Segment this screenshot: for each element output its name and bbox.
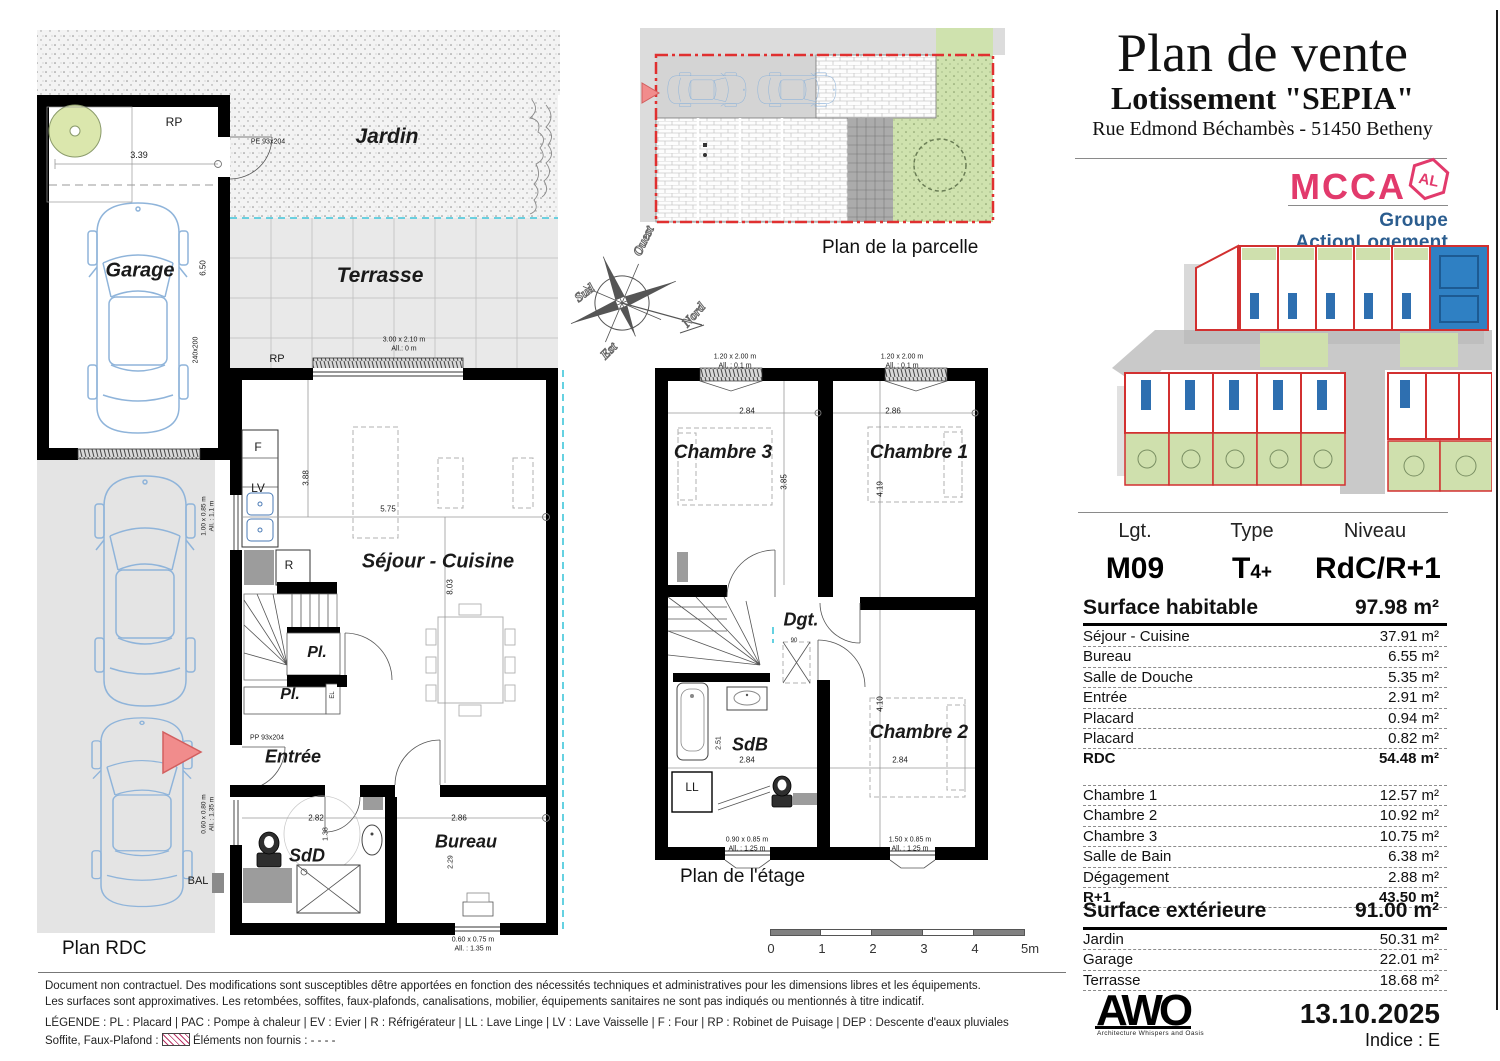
plan-rdc-caption: Plan RDC (62, 938, 146, 960)
r1-surface-rows: Chambre 112.57 m²Chambre 210.92 m²Chambr… (1083, 785, 1447, 908)
surface-row-label: Garage (1083, 950, 1133, 969)
lot-number: M09 (1085, 552, 1185, 586)
surface-row: Bureau6.55 m² (1083, 647, 1447, 667)
surface-habitable-label: Surface habitable (1083, 596, 1258, 623)
plan-annotation: All. : 1.35 m (455, 946, 492, 953)
al-hexagon-icon: AL (1408, 156, 1450, 202)
surface-row: Salle de Bain6.38 m² (1083, 847, 1447, 867)
footer-divider (38, 972, 1066, 973)
surface-row: Séjour - Cuisine37.91 m² (1083, 627, 1447, 647)
svg-text:AL: AL (1417, 170, 1440, 191)
legend-elements-label: Éléments non fournis : - - - - (193, 1035, 336, 1047)
scale-label-0: 0 (767, 941, 774, 956)
plan-etage-caption: Plan de l'étage (680, 866, 805, 888)
col-header-type: Type (1202, 520, 1302, 543)
surface-row-value: 0.94 m² (1388, 709, 1447, 728)
scale-bar (770, 929, 1025, 936)
surface-row-label: Bureau (1083, 647, 1131, 666)
surface-row-value: 12.57 m² (1380, 786, 1447, 805)
etage-floorplan-drawing (648, 345, 998, 890)
surface-row-label: Placard (1083, 729, 1134, 748)
lot-type: T4+ (1202, 552, 1302, 586)
surface-row-value: 6.38 m² (1388, 847, 1447, 866)
table-top-divider (1078, 512, 1448, 513)
surface-row: Salle de Douche5.35 m² (1083, 668, 1447, 688)
lotissement-subtitle: Lotissement "SEPIA" (1080, 80, 1445, 117)
document-title: Plan de vente (1080, 22, 1445, 84)
surface-habitable-header: Surface habitable 97.98 m² (1083, 596, 1447, 626)
surface-row-label: Salle de Douche (1083, 668, 1193, 687)
surface-row-label: Chambre 3 (1083, 827, 1157, 846)
address: Rue Edmond Béchambès - 51450 Betheny (1080, 118, 1445, 141)
surface-row-label: Salle de Bain (1083, 847, 1171, 866)
surface-row-label: Séjour - Cuisine (1083, 627, 1190, 646)
col-header-lgt: Lgt. (1085, 520, 1185, 543)
lot-type-sub: 4+ (1250, 562, 1272, 583)
surface-exterieure-value: 91.00 m² (1355, 899, 1447, 927)
awo-underline (1095, 1026, 1191, 1029)
surface-row: Chambre 210.92 m² (1083, 806, 1447, 826)
surface-row-value: 18.68 m² (1380, 971, 1447, 990)
legend-line2: Soffite, Faux-Plafond : Éléments non fou… (45, 1033, 336, 1047)
sheet-right-edge (1496, 10, 1498, 1010)
surface-row-label: Chambre 1 (1083, 786, 1157, 805)
ext-surface-rows: Jardin50.31 m²Garage22.01 m²Terrasse18.6… (1083, 930, 1447, 991)
scale-label-3: 3 (920, 941, 927, 956)
surface-row-value: 0.82 m² (1388, 729, 1447, 748)
header-divider (1075, 158, 1447, 159)
surface-row-value: 2.91 m² (1388, 688, 1447, 707)
surface-row-value: 2.88 m² (1388, 868, 1447, 887)
plan-de-vente-sheet: Ouest Sud Est Nord RP3.39Garage6.50240x2… (0, 0, 1500, 1061)
surface-row-value: 50.31 m² (1380, 930, 1447, 949)
surface-habitable-value: 97.98 m² (1355, 596, 1447, 623)
surface-row-value: 37.91 m² (1380, 627, 1447, 646)
surface-row-value: 5.35 m² (1388, 668, 1447, 687)
disclaimer-line1: Document non contractuel. Des modificati… (45, 980, 981, 992)
rdc-surface-rows: Séjour - Cuisine37.91 m²Bureau6.55 m²Sal… (1083, 627, 1447, 769)
surface-row-label: RDC (1083, 749, 1116, 768)
legend-line1: LÉGENDE : PL : Placard | PAC : Pompe à c… (45, 1017, 1009, 1029)
rdc-floorplan-drawing (35, 25, 570, 945)
scale-label-1: 1 (818, 941, 825, 956)
surface-row: Placard0.94 m² (1083, 709, 1447, 729)
surface-row: Garage22.01 m² (1083, 950, 1447, 970)
surface-row-value: 10.75 m² (1380, 827, 1447, 846)
compass-rose: Ouest Sud Est Nord (552, 225, 722, 385)
parcelle-plan-drawing (640, 25, 1005, 225)
scale-label-4: 4 (971, 941, 978, 956)
mcca-divider (1288, 205, 1448, 206)
surface-row-value: 10.92 m² (1380, 806, 1447, 825)
surface-row: Entrée2.91 m² (1083, 688, 1447, 708)
soffite-hatch-swatch-icon (162, 1033, 190, 1046)
scale-label-2: 2 (869, 941, 876, 956)
surface-row: Chambre 112.57 m² (1083, 786, 1447, 806)
scale-label-5: 5m (1021, 941, 1039, 956)
plan-date: 13.10.2025 (1240, 998, 1440, 1030)
surface-row: Jardin50.31 m² (1083, 930, 1447, 950)
surface-row-label: Placard (1083, 709, 1134, 728)
surface-row: Placard0.82 m² (1083, 729, 1447, 749)
surface-exterieure-header: Surface extérieure 91.00 m² (1083, 899, 1447, 930)
surface-row: Dégagement2.88 m² (1083, 868, 1447, 888)
awo-logo: AWO (1096, 992, 1189, 1029)
surface-row-value: 54.48 m² (1379, 749, 1447, 768)
surface-row-label: Dégagement (1083, 868, 1169, 887)
surface-row-label: Entrée (1083, 688, 1127, 707)
surface-row: Chambre 310.75 m² (1083, 827, 1447, 847)
surface-row: RDC54.48 m² (1083, 749, 1447, 768)
lot-niveau: RdC/R+1 (1315, 552, 1435, 586)
col-header-niveau: Niveau (1315, 520, 1435, 543)
surface-row-value: 22.01 m² (1380, 950, 1447, 969)
plan-parcelle-caption: Plan de la parcelle (822, 237, 978, 259)
mcca-logo: MCCA (1290, 166, 1406, 208)
surface-row-value: 6.55 m² (1388, 647, 1447, 666)
surface-row-label: Jardin (1083, 930, 1124, 949)
surface-exterieure-label: Surface extérieure (1083, 899, 1266, 927)
lot-type-t: T (1232, 552, 1250, 585)
surface-row-label: Chambre 2 (1083, 806, 1157, 825)
disclaimer-line2: Les surfaces sont approximatives. Les re… (45, 996, 924, 1008)
awo-tagline: Architecture Whispers and Oasis (1097, 1030, 1204, 1037)
plan-indice: Indice : E (1240, 1030, 1440, 1051)
site-plan-overview (1100, 238, 1492, 494)
legend-soffite-label: Soffite, Faux-Plafond : (45, 1035, 159, 1047)
